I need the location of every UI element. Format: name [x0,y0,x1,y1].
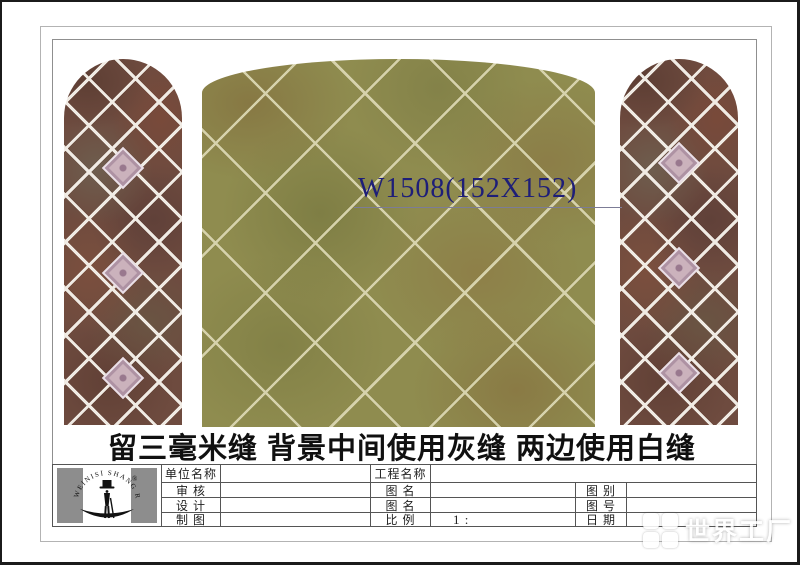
label-draftsman: 制 图 [161,512,220,526]
grout-instruction-caption: 留三毫米缝 背景中间使用灰缝 两边使用白缝 [2,425,800,467]
label-drawing-name: 图 名 [370,482,430,497]
label-scale: 比 例 [370,512,430,526]
label-project-name: 工程名称 [370,465,430,482]
title-block: WEINISI SHANG REN ® 单位名称 工程名称 审 核 图 名 图 … [52,464,757,527]
value-drawing-number [626,497,756,512]
label-unit-name: 单位名称 [161,465,220,482]
value-drawing-name-2 [430,497,575,512]
value-unit-name [220,465,370,482]
gentleman-logo-icon: WEINISI SHANG REN ® [68,468,146,524]
drawing-sheet: W1508(152X152) 留三毫米缝 背景中间使用灰缝 两边使用白缝 WEI… [0,0,800,565]
label-date: 日 期 [575,512,626,526]
label-drawing-number: 图 号 [575,497,626,512]
value-draftsman [220,512,370,526]
company-logo: WEINISI SHANG REN ® [53,465,161,526]
value-scale: 1 : [430,512,575,526]
center-tile-panel [202,59,595,427]
value-date [626,512,756,526]
label-drawing-type: 图 别 [575,482,626,497]
value-drawing-name [430,482,575,497]
svg-text:®: ® [132,475,138,483]
value-project-name [430,465,756,482]
value-reviewer [220,482,370,497]
label-reviewer: 审 核 [161,482,220,497]
tile-model-annotation: W1508(152X152) [358,173,577,205]
value-designer [220,497,370,512]
value-drawing-type [626,482,756,497]
label-designer: 设 计 [161,497,220,512]
annotation-leader-line [354,207,622,208]
label-drawing-name-2: 图 名 [370,497,430,512]
